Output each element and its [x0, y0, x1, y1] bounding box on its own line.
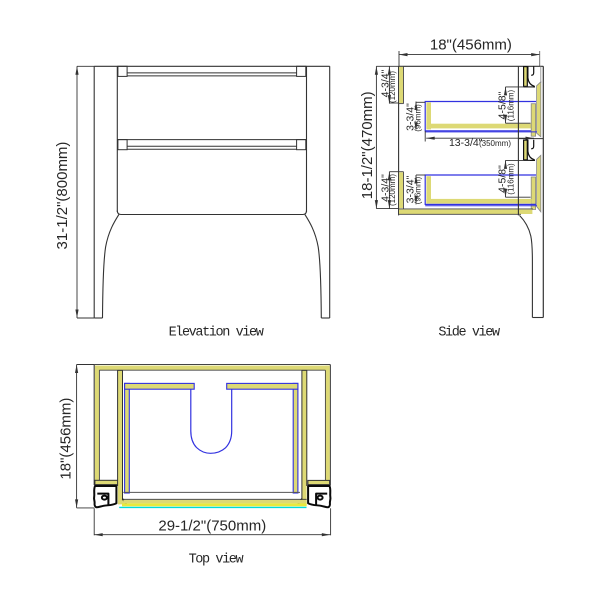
svg-text:(350mm): (350mm) — [479, 139, 511, 148]
svg-text:(116mm): (116mm) — [506, 163, 515, 195]
svg-text:(96mm): (96mm) — [413, 104, 422, 132]
svg-text:(120mm): (120mm) — [388, 71, 397, 103]
svg-text:18"(456mm): 18"(456mm) — [58, 398, 75, 480]
svg-text:Top view: Top view — [189, 552, 244, 567]
svg-text:(116mm): (116mm) — [506, 89, 515, 121]
svg-text:(96mm): (96mm) — [413, 176, 422, 204]
svg-text:18"(456mm): 18"(456mm) — [430, 36, 512, 53]
svg-text:18-1/2"(470mm): 18-1/2"(470mm) — [359, 91, 376, 199]
svg-text:Elevation view: Elevation view — [169, 325, 264, 340]
svg-text:31-1/2"(800mm): 31-1/2"(800mm) — [54, 142, 71, 250]
svg-text:(120mm): (120mm) — [388, 174, 397, 206]
svg-text:29-1/2"(750mm): 29-1/2"(750mm) — [158, 517, 266, 534]
svg-text:Side view: Side view — [438, 325, 500, 340]
svg-text:13-3/4": 13-3/4" — [449, 137, 483, 149]
